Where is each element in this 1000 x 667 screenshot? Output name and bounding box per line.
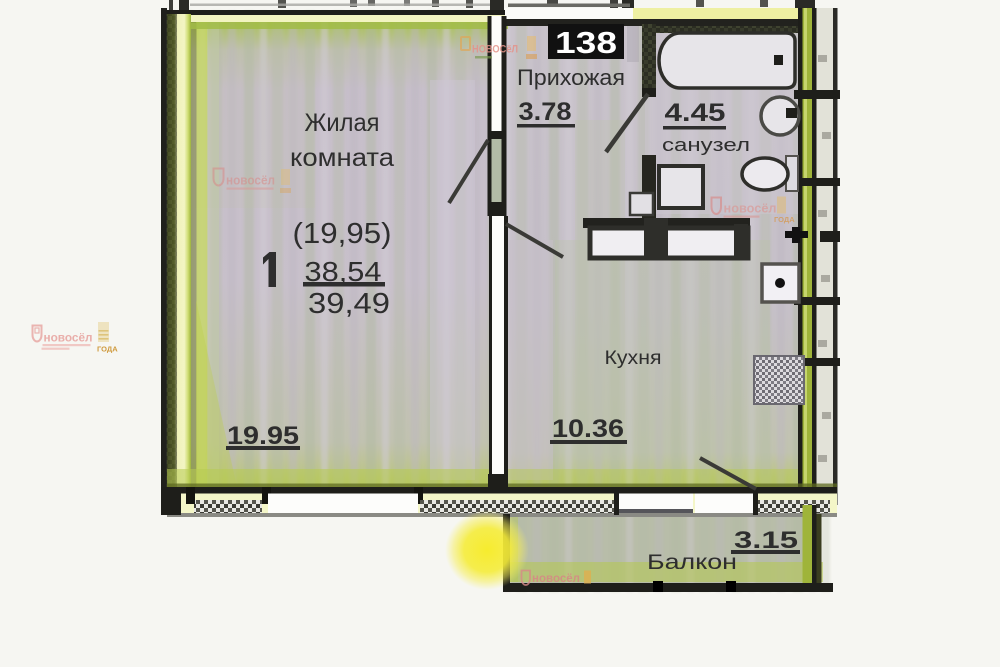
svg-text:138: 138 [555, 25, 617, 60]
svg-text:ГОДА: ГОДА [774, 215, 795, 224]
svg-text:новосёл: новосёл [532, 573, 580, 585]
svg-text:Кухня: Кухня [605, 348, 662, 369]
svg-text:ГОДА: ГОДА [97, 345, 118, 354]
svg-text:3.15: 3.15 [734, 527, 798, 554]
svg-text:39,49: 39,49 [308, 288, 390, 320]
svg-text:3.78: 3.78 [519, 98, 572, 126]
svg-text:19.95: 19.95 [227, 422, 299, 450]
svg-text:10.36: 10.36 [552, 415, 624, 443]
svg-text:(19,95): (19,95) [293, 218, 392, 250]
svg-text:4.45: 4.45 [665, 99, 726, 127]
svg-text:Прихожая: Прихожая [517, 65, 625, 90]
svg-text:Жилая: Жилая [305, 109, 380, 137]
svg-text:новосёл: новосёл [44, 331, 93, 345]
svg-text:НОВОСёЛ: НОВОСёЛ [472, 44, 518, 56]
svg-text:комната: комната [290, 144, 394, 172]
svg-text:новосёл: новосёл [226, 173, 275, 188]
svg-text:Балкон: Балкон [647, 551, 737, 574]
svg-text:санузел: санузел [662, 135, 750, 155]
svg-text:новосёл: новосёл [724, 201, 777, 216]
